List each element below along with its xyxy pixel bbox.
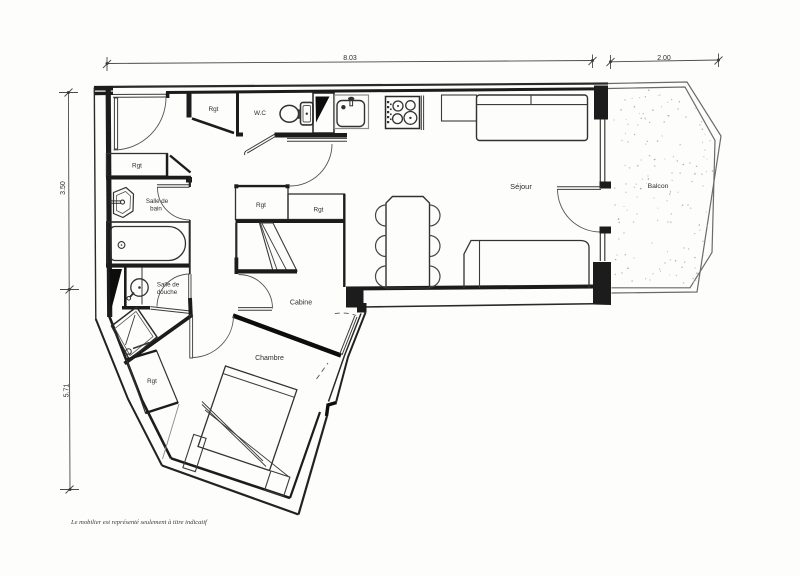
svg-text:Chambre: Chambre — [255, 355, 284, 362]
svg-text:Séjour: Séjour — [510, 182, 532, 191]
svg-text:5.71: 5.71 — [64, 384, 71, 398]
svg-text:2.00: 2.00 — [657, 55, 671, 62]
svg-text:Balcon: Balcon — [648, 183, 669, 190]
svg-text:Salle de: Salle de — [146, 198, 169, 205]
svg-text:bain: bain — [150, 206, 162, 213]
svg-text:Le mobilier est représenté seu: Le mobilier est représenté seulement à t… — [70, 519, 208, 526]
svg-text:Rgt: Rgt — [314, 207, 324, 214]
svg-text:3.50: 3.50 — [60, 181, 67, 195]
svg-text:Rgt: Rgt — [209, 106, 219, 113]
svg-text:W.C: W.C — [254, 110, 266, 117]
svg-text:8.03: 8.03 — [343, 55, 357, 62]
svg-text:Rgt: Rgt — [132, 163, 142, 170]
svg-text:Cabine: Cabine — [290, 300, 312, 307]
svg-text:Rgt: Rgt — [256, 202, 266, 209]
svg-text:Rgt: Rgt — [147, 378, 157, 385]
